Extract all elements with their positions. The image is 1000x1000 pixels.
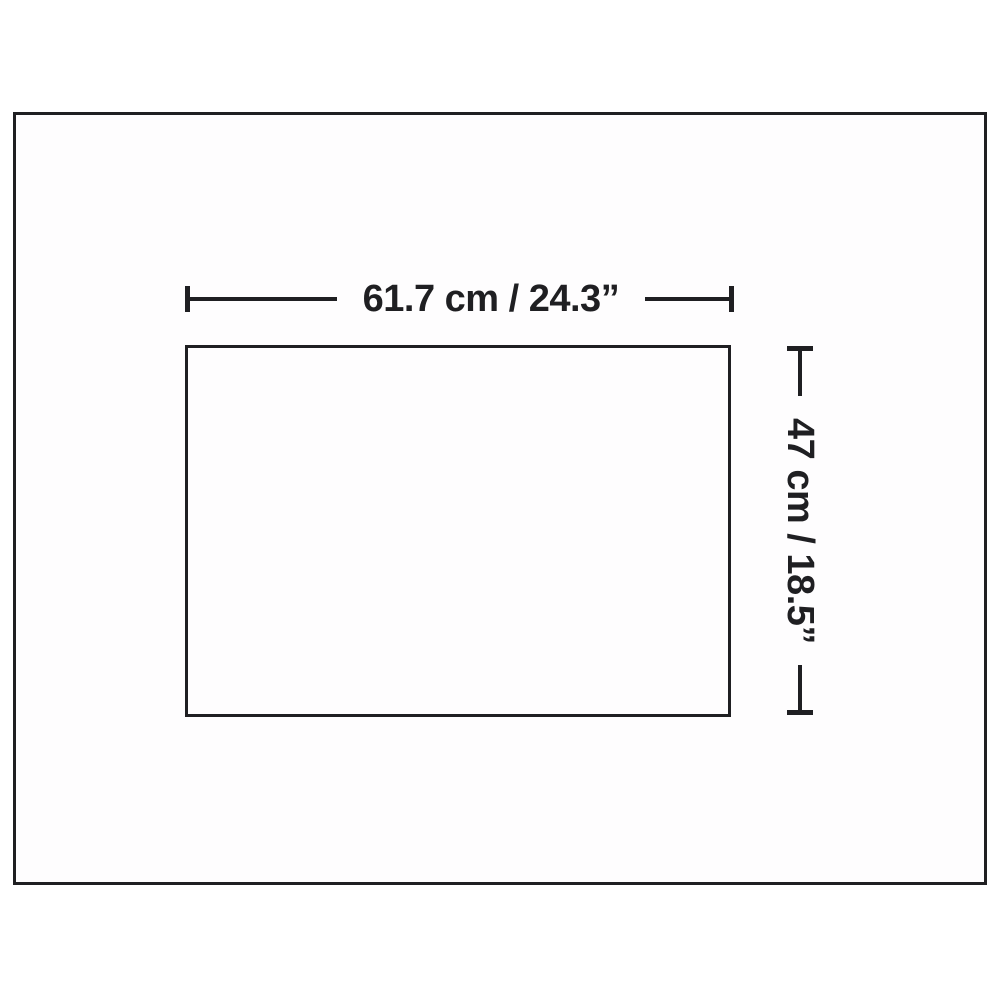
height-dimension-line-top bbox=[798, 351, 802, 396]
height-dimension-line-bottom bbox=[798, 665, 802, 710]
width-dimension-line-left bbox=[190, 297, 337, 301]
width-dimension: 61.7 cm / 24.3” bbox=[185, 275, 734, 323]
width-endcap-right bbox=[729, 286, 734, 312]
width-dimension-label: 61.7 cm / 24.3” bbox=[337, 280, 646, 318]
dimension-diagram: 61.7 cm / 24.3” 47 cm / 18.5” bbox=[0, 0, 1000, 1000]
measured-rectangle bbox=[185, 345, 731, 717]
height-dimension: 47 cm / 18.5” bbox=[776, 346, 824, 715]
height-endcap-bottom bbox=[787, 710, 813, 715]
height-dimension-label: 47 cm / 18.5” bbox=[781, 396, 819, 666]
width-dimension-line-right bbox=[645, 297, 729, 301]
